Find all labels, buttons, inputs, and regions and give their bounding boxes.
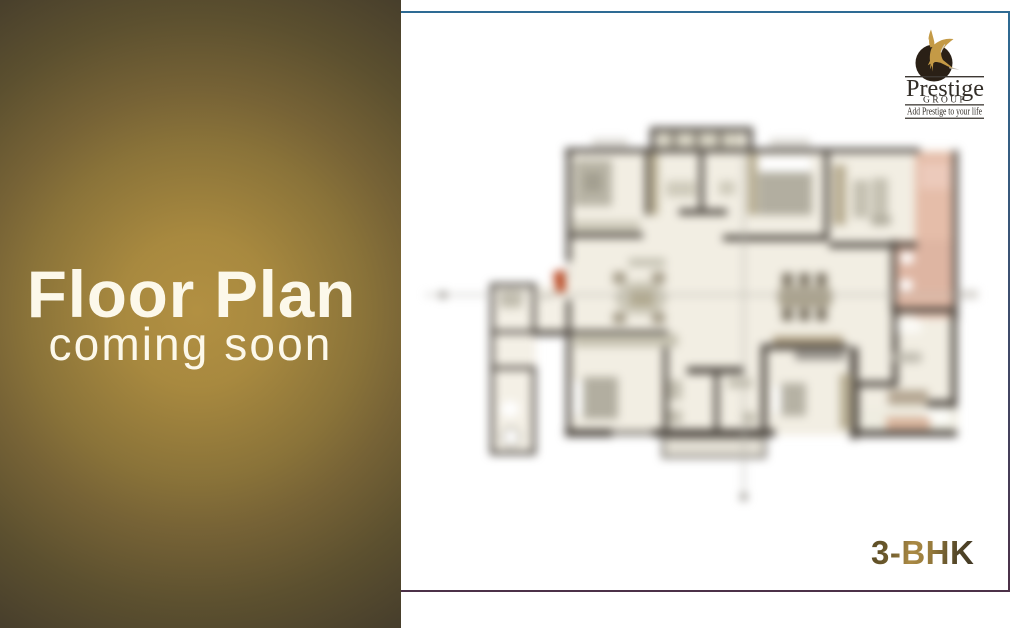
svg-text:GROUP: GROUP (923, 95, 967, 105)
svg-text:Add Prestige to your life: Add Prestige to your life (907, 106, 982, 118)
